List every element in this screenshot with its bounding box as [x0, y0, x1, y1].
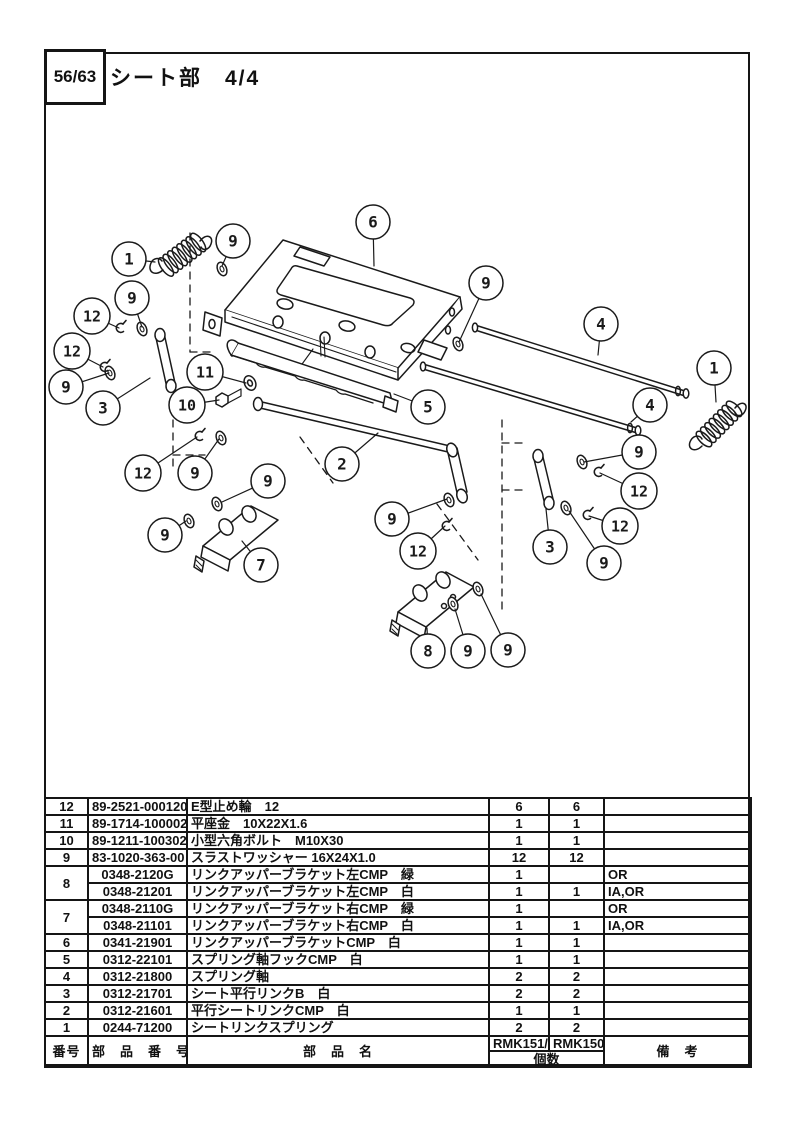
callout-balloon-4: 4 [631, 388, 667, 422]
part-3-seat-parallel-link-right [533, 450, 554, 510]
thrust-washer [182, 513, 196, 529]
part-number-cell: 0244-71200 [88, 1019, 187, 1036]
parts-table-body: 1289-2521-000120E型止め輪 12661189-1714-1000… [45, 798, 751, 1036]
parts-table-row: 1089-1211-100302小型六角ボルト M10X3011 [45, 832, 751, 849]
qty-model-a-cell: 2 [489, 985, 549, 1002]
remarks-cell: OR [604, 900, 751, 917]
callout-balloon-12: 12 [54, 333, 103, 369]
ref-no-cell: 2 [45, 1002, 88, 1019]
column-header-qty: 個数 [489, 1051, 604, 1067]
callout-number: 9 [387, 510, 397, 529]
part-number-cell: 89-1211-100302 [88, 832, 187, 849]
parts-table-row: 30312-21701シート平行リンクB 白22 [45, 985, 751, 1002]
parts-table-row: 80348-2120Gリンクアッパーブラケット左CMP 緑1OR [45, 866, 751, 883]
remarks-cell: IA,OR [604, 883, 751, 900]
remarks-cell [604, 798, 751, 815]
parts-table-row: 0348-21201リンクアッパーブラケット左CMP 白11IA,OR [45, 883, 751, 900]
callout-balloon-12: 12 [600, 473, 657, 509]
callout-balloon-1: 1 [697, 351, 731, 402]
qty-model-b-cell [549, 866, 604, 883]
qty-model-a-cell: 1 [489, 883, 549, 900]
remarks-cell [604, 951, 751, 968]
qty-model-a-cell: 1 [489, 934, 549, 951]
callout-number: 10 [178, 397, 196, 415]
e-ring-clip [195, 431, 202, 440]
part-number-cell: 0348-2110G [88, 900, 187, 917]
callout-balloon-3: 3 [86, 378, 150, 425]
part-number-cell: 0312-21601 [88, 1002, 187, 1019]
callout-balloon-9: 9 [459, 266, 503, 342]
e-ring-clip [594, 467, 601, 476]
parts-table-row: 60341-21901リンクアッパーブラケットCMP 白11 [45, 934, 751, 951]
callout-number: 9 [127, 289, 137, 308]
ref-no-cell: 12 [45, 798, 88, 815]
qty-model-b-cell: 1 [549, 883, 604, 900]
qty-model-a-cell: 12 [489, 849, 549, 866]
callout-number: 9 [263, 472, 273, 491]
callout-number: 3 [98, 399, 108, 418]
parts-table-row: 1189-1714-100002平座金 10X22X1.611 [45, 815, 751, 832]
qty-model-a-cell: 1 [489, 1002, 549, 1019]
thrust-washer [103, 365, 117, 381]
parts-table-row: 70348-2110Gリンクアッパーブラケット右CMP 緑1OR [45, 900, 751, 917]
qty-model-a-cell: 2 [489, 968, 549, 985]
callout-balloon-9: 9 [481, 594, 525, 667]
remarks-cell [604, 968, 751, 985]
callout-balloon-11: 11 [187, 354, 246, 390]
part-name-cell: リンクアッパーブラケットCMP 白 [187, 934, 489, 951]
callout-balloon-9: 9 [375, 499, 447, 536]
ref-no-cell: 8 [45, 866, 88, 900]
remarks-cell [604, 849, 751, 866]
qty-model-a-cell: 1 [489, 951, 549, 968]
ref-no-cell: 6 [45, 934, 88, 951]
callout-balloon-10: 10 [169, 387, 219, 423]
ref-no-cell: 7 [45, 900, 88, 934]
part-1-seat-link-spring-right [689, 399, 746, 450]
part-number-cell: 0312-21800 [88, 968, 187, 985]
ref-no-cell: 4 [45, 968, 88, 985]
qty-model-b-cell: 2 [549, 968, 604, 985]
qty-model-b-cell: 1 [549, 951, 604, 968]
ref-no-cell: 1 [45, 1019, 88, 1036]
callout-balloon-12: 12 [589, 508, 638, 544]
part-name-cell: スプリング軸 [187, 968, 489, 985]
qty-model-b-cell: 2 [549, 1019, 604, 1036]
parts-table-row: 50312-22101スプリング軸フックCMP 白11 [45, 951, 751, 968]
qty-model-a-cell: 1 [489, 866, 549, 883]
parts-table-row: 983-1020-363-00スラストワッシャー 16X24X1.01212 [45, 849, 751, 866]
callout-balloon-5: 5 [394, 390, 445, 424]
ref-no-cell: 9 [45, 849, 88, 866]
callout-number: 4 [645, 396, 655, 415]
remarks-cell: IA,OR [604, 917, 751, 934]
qty-model-b-cell: 6 [549, 798, 604, 815]
callout-number: 9 [463, 642, 473, 661]
remarks-cell [604, 1019, 751, 1036]
callout-number: 12 [134, 465, 152, 483]
parts-table-row: 10244-71200シートリンクスプリング22 [45, 1019, 751, 1036]
e-ring-clip [442, 521, 449, 530]
callout-number: 12 [409, 543, 427, 561]
part-name-cell: スプリング軸フックCMP 白 [187, 951, 489, 968]
callout-number: 12 [630, 483, 648, 501]
callout-number: 8 [423, 642, 433, 661]
qty-model-b-cell: 12 [549, 849, 604, 866]
remarks-cell [604, 985, 751, 1002]
column-header-model-b: RMK150A [549, 1036, 604, 1051]
callout-balloon-6: 6 [356, 205, 390, 266]
remarks-cell [604, 832, 751, 849]
callout-number: 5 [423, 398, 433, 417]
thrust-washer [135, 321, 149, 337]
qty-model-a-cell: 2 [489, 1019, 549, 1036]
callout-number: 12 [83, 308, 101, 326]
catalog-page: 56/63 シート部 4/4 [0, 0, 793, 1122]
callout-number: 4 [596, 315, 606, 334]
column-header-remarks: 備 考 [604, 1036, 751, 1067]
part-name-cell: 平行シートリンクCMP 白 [187, 1002, 489, 1019]
qty-model-b-cell: 1 [549, 934, 604, 951]
callout-balloon-7: 7 [242, 541, 278, 582]
thrust-washer [210, 496, 224, 512]
column-header-no: 番号 [45, 1036, 88, 1067]
qty-model-b-cell [549, 900, 604, 917]
column-header-part-name: 部 品 名 [187, 1036, 489, 1067]
callout-balloon-12: 12 [400, 526, 445, 569]
callout-number: 9 [61, 378, 71, 397]
part-name-cell: E型止め輪 12 [187, 798, 489, 815]
part-name-cell: シートリンクスプリング [187, 1019, 489, 1036]
qty-model-b-cell: 1 [549, 832, 604, 849]
parts-table-row: 40312-21800スプリング軸22 [45, 968, 751, 985]
qty-model-a-cell: 1 [489, 832, 549, 849]
qty-model-b-cell: 1 [549, 917, 604, 934]
callout-number: 1 [124, 250, 134, 269]
ref-no-cell: 10 [45, 832, 88, 849]
callout-balloon-9: 9 [584, 435, 656, 469]
callout-number: 9 [599, 554, 609, 573]
callout-balloon-1: 1 [112, 242, 155, 276]
callout-number: 9 [190, 464, 200, 483]
callout-balloon-9: 9 [451, 609, 485, 668]
callout-number: 7 [256, 556, 266, 575]
callout-number: 9 [634, 443, 644, 462]
part-name-cell: リンクアッパーブラケット左CMP 白 [187, 883, 489, 900]
parts-table-row: 20312-21601平行シートリンクCMP 白11 [45, 1002, 751, 1019]
callout-number: 6 [368, 213, 378, 232]
qty-model-a-cell: 1 [489, 900, 549, 917]
part-1-seat-link-spring-left [150, 231, 212, 278]
ref-no-cell: 5 [45, 951, 88, 968]
remarks-cell [604, 934, 751, 951]
ref-no-cell: 11 [45, 815, 88, 832]
part-number-cell: 0348-21101 [88, 917, 187, 934]
callout-number: 9 [228, 232, 238, 251]
thrust-washer [471, 581, 485, 597]
part-number-cell: 83-1020-363-00 [88, 849, 187, 866]
part-number-cell: 89-2521-000120 [88, 798, 187, 815]
callout-number: 9 [481, 274, 491, 293]
qty-model-a-cell: 1 [489, 917, 549, 934]
callout-number: 2 [337, 455, 347, 474]
callout-balloon-2: 2 [325, 433, 378, 481]
part-10-hex-bolt [216, 389, 241, 407]
part-number-cell: 0341-21901 [88, 934, 187, 951]
callout-balloon-9: 9 [216, 224, 250, 266]
parts-table-row: 1289-2521-000120E型止め輪 1266 [45, 798, 751, 815]
callout-number: 12 [611, 518, 629, 536]
ref-no-cell: 3 [45, 985, 88, 1002]
callout-number: 1 [709, 359, 719, 378]
part-name-cell: リンクアッパーブラケット右CMP 緑 [187, 900, 489, 917]
part-number-cell: 89-1714-100002 [88, 815, 187, 832]
callout-balloon-3: 3 [533, 509, 567, 564]
qty-model-b-cell: 1 [549, 815, 604, 832]
callout-number: 9 [160, 526, 170, 545]
column-header-model-a: RMK151/X [489, 1036, 549, 1051]
thrust-washer [215, 261, 229, 277]
callout-balloon-9: 9 [148, 518, 186, 552]
part-number-cell: 0348-2120G [88, 866, 187, 883]
part-name-cell: 平座金 10X22X1.6 [187, 815, 489, 832]
callout-balloon-12: 12 [74, 298, 119, 334]
exploded-parts-diagram: 196912129311105941491212392129997912899 [0, 0, 793, 797]
callout-number: 3 [545, 538, 555, 557]
callout-balloon-9: 9 [222, 464, 285, 502]
part-number-cell: 0312-21701 [88, 985, 187, 1002]
callout-balloon-9: 9 [178, 439, 219, 490]
remarks-cell [604, 815, 751, 832]
parts-table-row: 0348-21101リンクアッパーブラケット右CMP 白11IA,OR [45, 917, 751, 934]
qty-model-b-cell: 1 [549, 1002, 604, 1019]
part-3-seat-parallel-link-left [155, 329, 176, 393]
column-header-part-no: 部 品 番 号 [88, 1036, 187, 1067]
e-ring-clip [583, 510, 590, 519]
thrust-washer [451, 336, 465, 352]
callout-balloon-4: 4 [584, 307, 618, 355]
part-number-cell: 0312-22101 [88, 951, 187, 968]
qty-model-b-cell: 2 [549, 985, 604, 1002]
callout-number: 11 [196, 364, 214, 382]
remarks-cell [604, 1002, 751, 1019]
remarks-cell: OR [604, 866, 751, 883]
callout-number: 12 [63, 343, 81, 361]
parts-table-footer: 番号 部 品 番 号 部 品 名 RMK151/X RMK150A 備 考 個数 [45, 1036, 751, 1067]
qty-model-a-cell: 1 [489, 815, 549, 832]
callout-number: 9 [503, 641, 513, 660]
qty-model-a-cell: 6 [489, 798, 549, 815]
callout-balloon-9: 9 [115, 281, 149, 327]
part-name-cell: リンクアッパーブラケット右CMP 白 [187, 917, 489, 934]
part-name-cell: スラストワッシャー 16X24X1.0 [187, 849, 489, 866]
part-name-cell: リンクアッパーブラケット左CMP 緑 [187, 866, 489, 883]
part-name-cell: 小型六角ボルト M10X30 [187, 832, 489, 849]
part-number-cell: 0348-21201 [88, 883, 187, 900]
parts-table: 1289-2521-000120E型止め輪 12661189-1714-1000… [44, 797, 752, 1068]
part-name-cell: シート平行リンクB 白 [187, 985, 489, 1002]
